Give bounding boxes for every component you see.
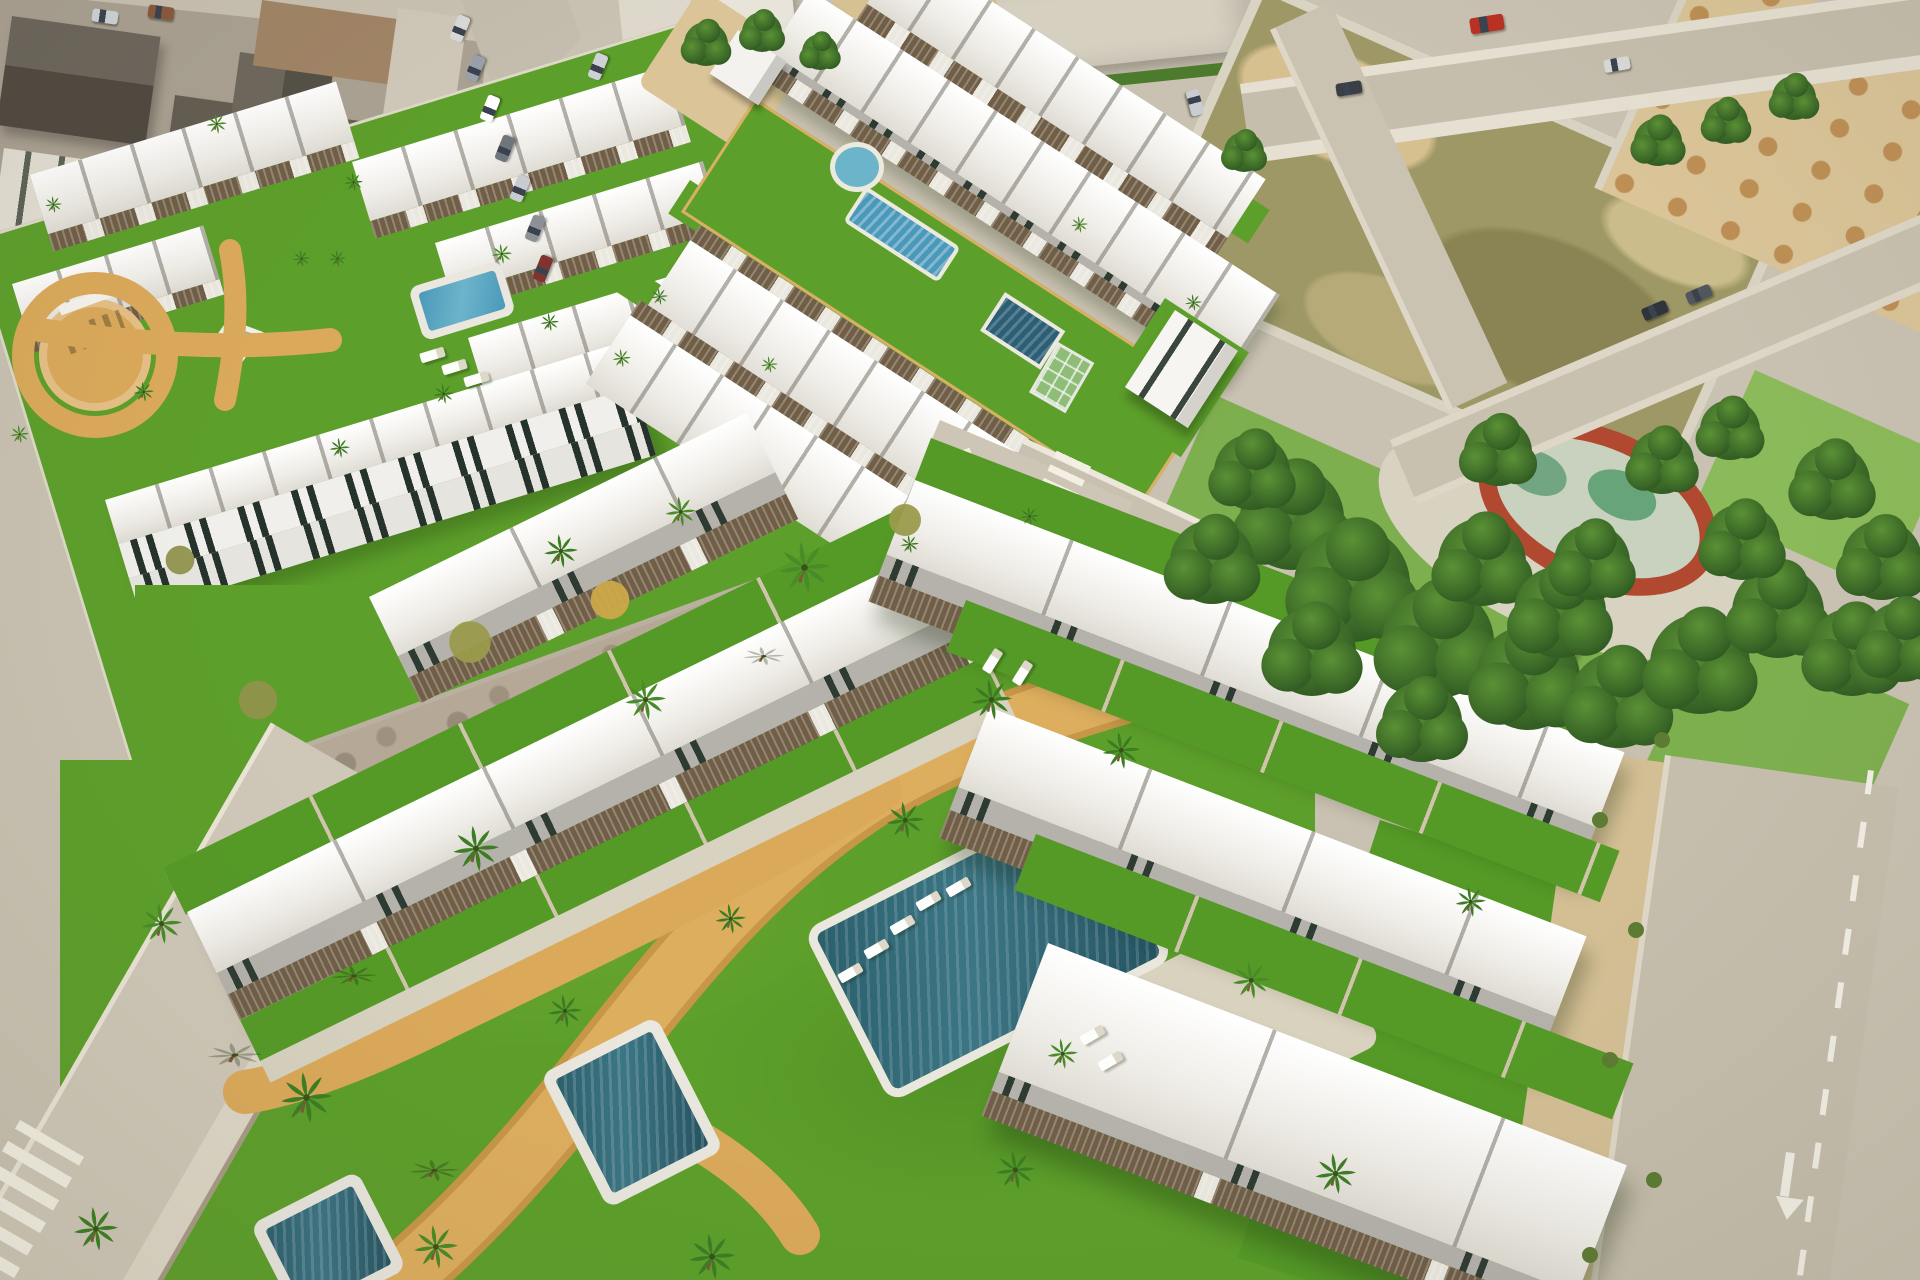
urban-roof-gable	[0, 16, 161, 146]
palm-tree	[10, 425, 29, 444]
aerial-render-canvas	[0, 0, 1920, 1280]
park-tree	[1856, 596, 1920, 682]
complex1-plaza-circle	[39, 299, 151, 411]
car	[1185, 88, 1204, 116]
complex2-kids-pool	[830, 142, 884, 192]
red-van	[1469, 13, 1505, 34]
road-arrow-head	[1773, 1196, 1804, 1222]
